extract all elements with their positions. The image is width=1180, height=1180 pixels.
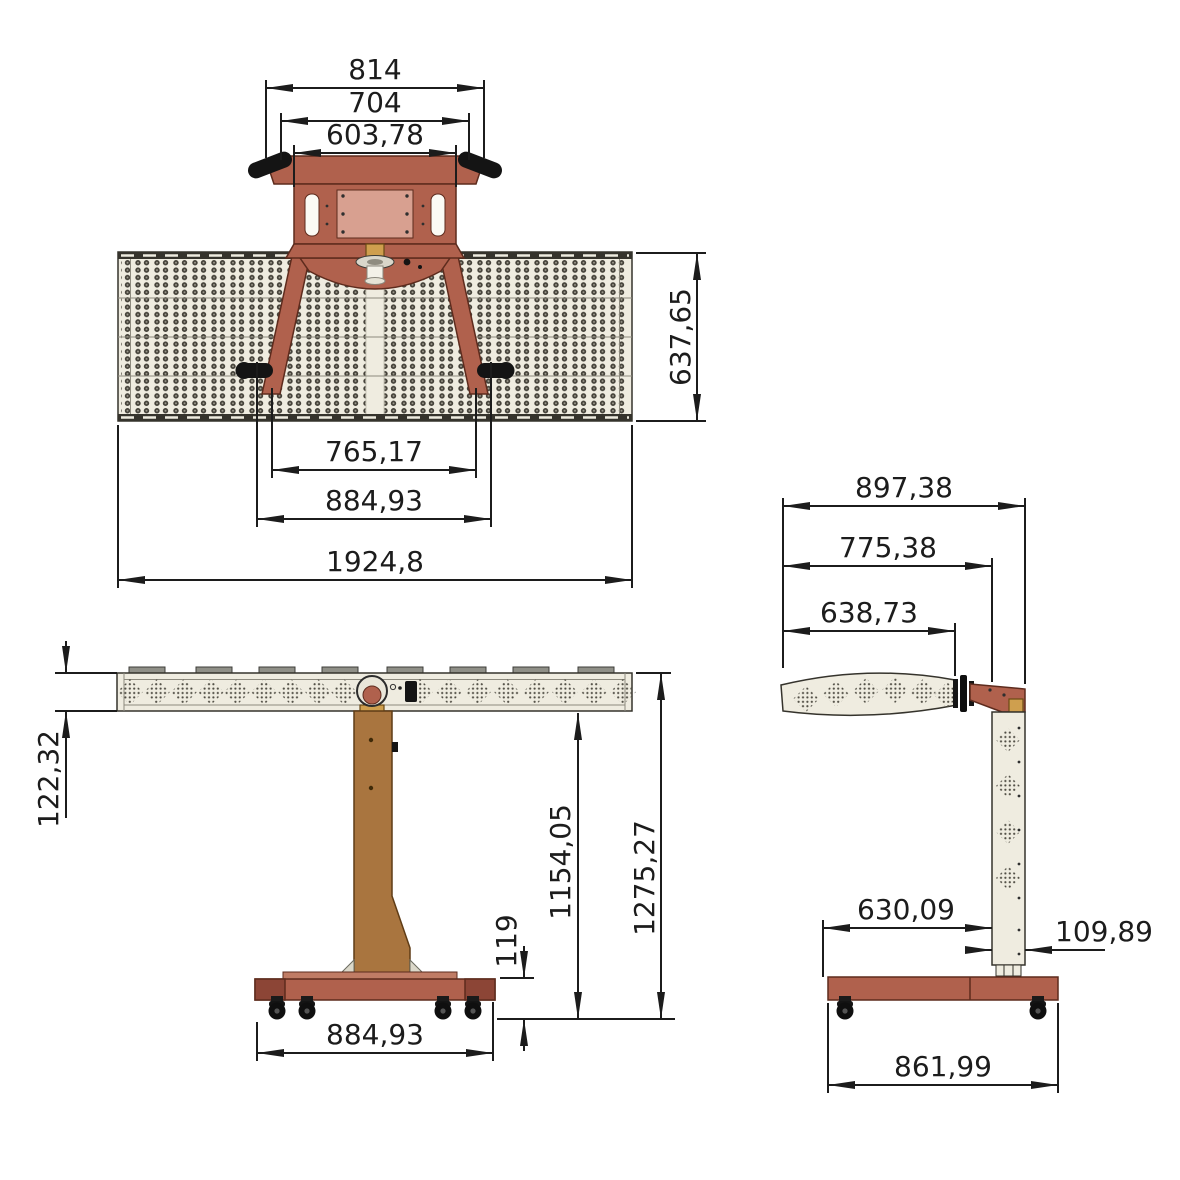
dim-arrow [965,924,992,932]
pivot-hub [367,259,383,265]
dim-arrow [257,1049,284,1057]
dim-label: 1924,8 [326,548,424,576]
dim-label: 638,73 [820,599,918,627]
dim-arrow [118,576,145,584]
extension-line [1024,498,1026,684]
dim-arrow [449,466,476,474]
dim-arrow [693,394,701,421]
dim-line [272,469,476,471]
dim-arrow [823,924,850,932]
extension-line [117,425,119,588]
dim-label: 122,32 [35,730,63,828]
screw-dot [1018,727,1021,730]
bracket-slot [431,194,445,236]
extension-line [636,672,671,674]
dim-arrow [294,149,321,157]
extension-line [631,425,633,588]
screw-dot [1018,863,1021,866]
screw-dot [1018,929,1021,932]
extension-line [827,1003,829,1093]
dim-line [118,579,632,581]
technical-drawing-page: 814 704 603,78 637,65 765,17 [0,0,1180,1180]
screw-dot [1018,829,1021,832]
caster-wheel [465,996,482,1020]
dim-arrow [520,1019,528,1046]
dim-arrow [657,992,665,1019]
dim-arrow [272,466,299,474]
caster-wheel [435,996,452,1020]
dim-line [783,505,1025,507]
screw-dot [1018,953,1021,956]
dim-line [828,1084,1058,1086]
caster-wheel [1030,996,1047,1020]
dim-arrow [693,253,701,280]
caster-wheel [299,996,316,1020]
extension-line [271,388,273,478]
extension-line [1057,1003,1059,1093]
extension-line [991,558,993,682]
dim-arrow [783,627,810,635]
dim-arrow [998,502,1025,510]
dim-arrow [257,515,284,523]
dim-label: 109,89 [1055,918,1153,946]
extension-line [490,362,492,527]
caster-wheel [837,996,854,1020]
dim-line [783,565,992,567]
dim-arrow [1025,946,1052,954]
extension-line [483,80,485,158]
caster-wheel [269,996,286,1020]
extension-line [256,362,258,527]
screw-dot [1018,761,1021,764]
dim-label: 861,99 [894,1053,992,1081]
dim-arrow [464,515,491,523]
dim-label: 897,38 [855,474,953,502]
bolt-dot [398,686,402,690]
handle-knob-end [498,362,515,379]
bolt-dot [404,259,411,266]
dim-arrow [457,84,484,92]
pivot-flange-side [960,675,967,712]
base-bar-front [255,979,495,1000]
pivot-collar [365,278,385,285]
base-top-plate [283,972,457,979]
dim-label: 1275,27 [631,820,659,936]
bracket-slot [305,194,319,236]
dim-label: 1154,05 [547,804,575,920]
bolt-dot [390,684,395,689]
column-foot [996,965,1021,976]
dim-arrow [266,84,293,92]
top-view-graphic [118,149,632,421]
dim-arrow [429,149,456,157]
extension-line [782,498,784,668]
dim-line [257,518,491,520]
pivot-core [363,686,381,704]
dim-arrow [783,502,810,510]
dim-arrow [62,646,70,673]
dim-arrow [574,992,582,1019]
bolt-dot [418,265,422,269]
dim-line [577,713,579,1019]
handle-knob-end [236,362,253,379]
dim-arrow [1031,1081,1058,1089]
dim-label: 884,93 [325,487,423,515]
extension-line [265,80,267,158]
dim-arrow [783,562,810,570]
dim-arrow [442,117,469,125]
dim-label: 814 [348,56,401,84]
dim-arrow [928,627,955,635]
dim-label: 603,78 [326,121,424,149]
mount-plate [337,190,413,238]
machine-drawing [0,0,1180,1180]
dim-arrow [466,1049,493,1057]
dim-arrow [574,713,582,740]
dim-arrow [281,117,308,125]
dim-label: 775,38 [839,534,937,562]
extension-line [475,388,477,478]
dim-arrow [965,562,992,570]
switch-block [405,681,417,702]
dim-label: 119 [493,914,521,967]
extension-line [500,977,534,979]
dim-label: 704 [348,89,401,117]
base-bar-side [828,977,1058,1000]
dim-label: 884,93 [326,1021,424,1049]
bracket-block-side [1009,699,1023,712]
dim-arrow [965,946,992,954]
dim-arrow [828,1081,855,1089]
dim-line [257,1052,493,1054]
dim-arrow [657,673,665,700]
pivot-flange-side [953,679,958,708]
screw-dot [1018,897,1021,900]
post-knob [392,742,398,752]
dim-label: 630,09 [857,896,955,924]
dim-label: 765,17 [325,438,423,466]
screw-dot [1018,795,1021,798]
bracket-top-bar [268,156,482,184]
dim-arrow [605,576,632,584]
stand-post [354,711,410,978]
dim-label: 637,65 [667,288,695,386]
